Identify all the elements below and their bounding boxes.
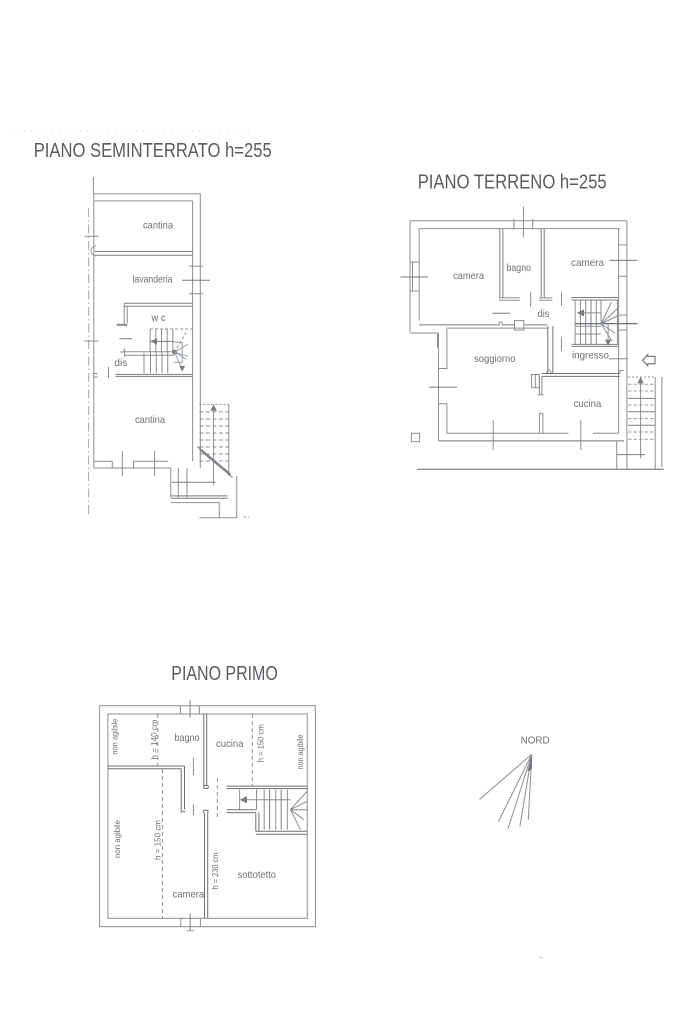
svg-text:dis: dis xyxy=(538,308,550,320)
svg-text:camera: camera xyxy=(173,889,205,901)
svg-text:cucina: cucina xyxy=(574,398,602,410)
svg-text:camera: camera xyxy=(571,257,604,269)
svg-text:sottotetto: sottotetto xyxy=(238,869,277,881)
svg-text:cantina: cantina xyxy=(135,414,165,426)
svg-text:non agibile: non agibile xyxy=(113,819,122,858)
svg-text:PIANO SEMINTERRATO h=255: PIANO SEMINTERRATO h=255 xyxy=(34,140,272,162)
svg-text:w c: w c xyxy=(151,312,166,324)
svg-text:PIANO PRIMO: PIANO PRIMO xyxy=(171,663,277,685)
svg-text:soggiorno: soggiorno xyxy=(474,353,516,365)
svg-text:camera: camera xyxy=(453,270,484,282)
svg-text:h = 150 cm: h = 150 cm xyxy=(256,724,265,762)
svg-text:cantina: cantina xyxy=(143,220,173,232)
svg-text:h = 150 cm: h = 150 cm xyxy=(154,820,163,860)
svg-text:dis: dis xyxy=(114,357,127,369)
svg-text:non agibile: non agibile xyxy=(296,734,305,769)
svg-text:NORD: NORD xyxy=(521,735,550,747)
svg-text:h = 230 cm: h = 230 cm xyxy=(211,852,220,889)
svg-text:cucina: cucina xyxy=(216,738,244,750)
svg-text:bagno: bagno xyxy=(175,732,200,744)
svg-text:non agibile: non agibile xyxy=(110,718,119,755)
svg-text:ingresso: ingresso xyxy=(572,350,609,362)
svg-text:PIANO TERRENO h=255: PIANO TERRENO h=255 xyxy=(418,172,607,194)
svg-text:h = 140 cm: h = 140 cm xyxy=(150,719,159,759)
svg-text:bagno: bagno xyxy=(507,262,532,274)
svg-text:lavanderia: lavanderia xyxy=(133,274,173,286)
